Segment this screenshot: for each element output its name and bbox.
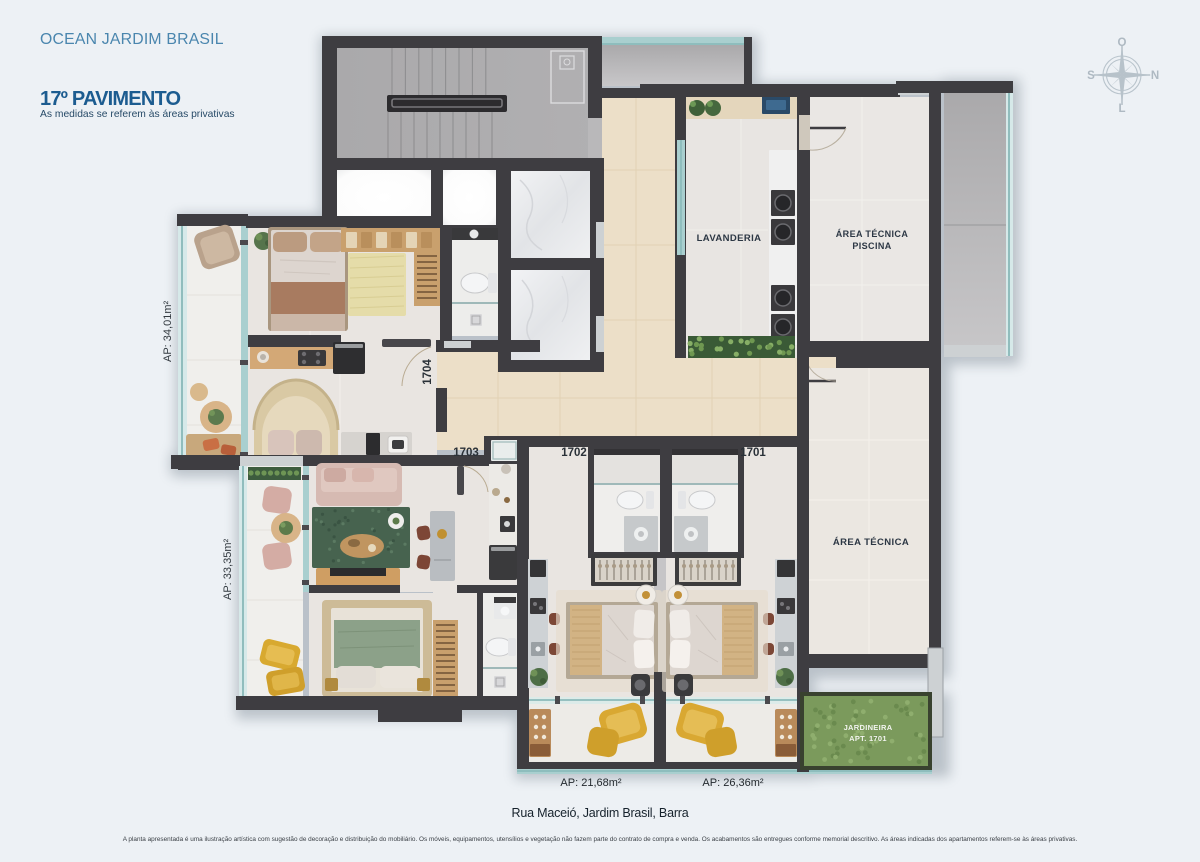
svg-text:1704: 1704 <box>422 359 434 385</box>
svg-text:1701: 1701 <box>740 447 766 459</box>
svg-text:APT. 1701: APT. 1701 <box>849 734 887 743</box>
svg-text:AP: 33,35m²: AP: 33,35m² <box>222 539 234 600</box>
svg-text:JARDINEIRA: JARDINEIRA <box>844 723 893 732</box>
svg-text:AP: 34,01m²: AP: 34,01m² <box>162 301 174 362</box>
svg-text:N: N <box>1151 70 1159 82</box>
svg-text:AP: 21,68m²: AP: 21,68m² <box>560 777 621 789</box>
svg-text:1703: 1703 <box>453 447 479 459</box>
svg-text:AP: 26,36m²: AP: 26,36m² <box>702 777 763 789</box>
svg-text:O: O <box>1118 37 1127 49</box>
svg-text:1702: 1702 <box>561 447 587 459</box>
svg-text:L: L <box>1118 103 1125 115</box>
svg-text:S: S <box>1087 70 1095 82</box>
svg-text:ÁREA TÉCNICA: ÁREA TÉCNICA <box>836 229 909 239</box>
svg-text:LAVANDERIA: LAVANDERIA <box>697 233 762 244</box>
svg-text:PISCINA: PISCINA <box>852 241 891 251</box>
svg-text:ÁREA TÉCNICA: ÁREA TÉCNICA <box>833 537 909 548</box>
